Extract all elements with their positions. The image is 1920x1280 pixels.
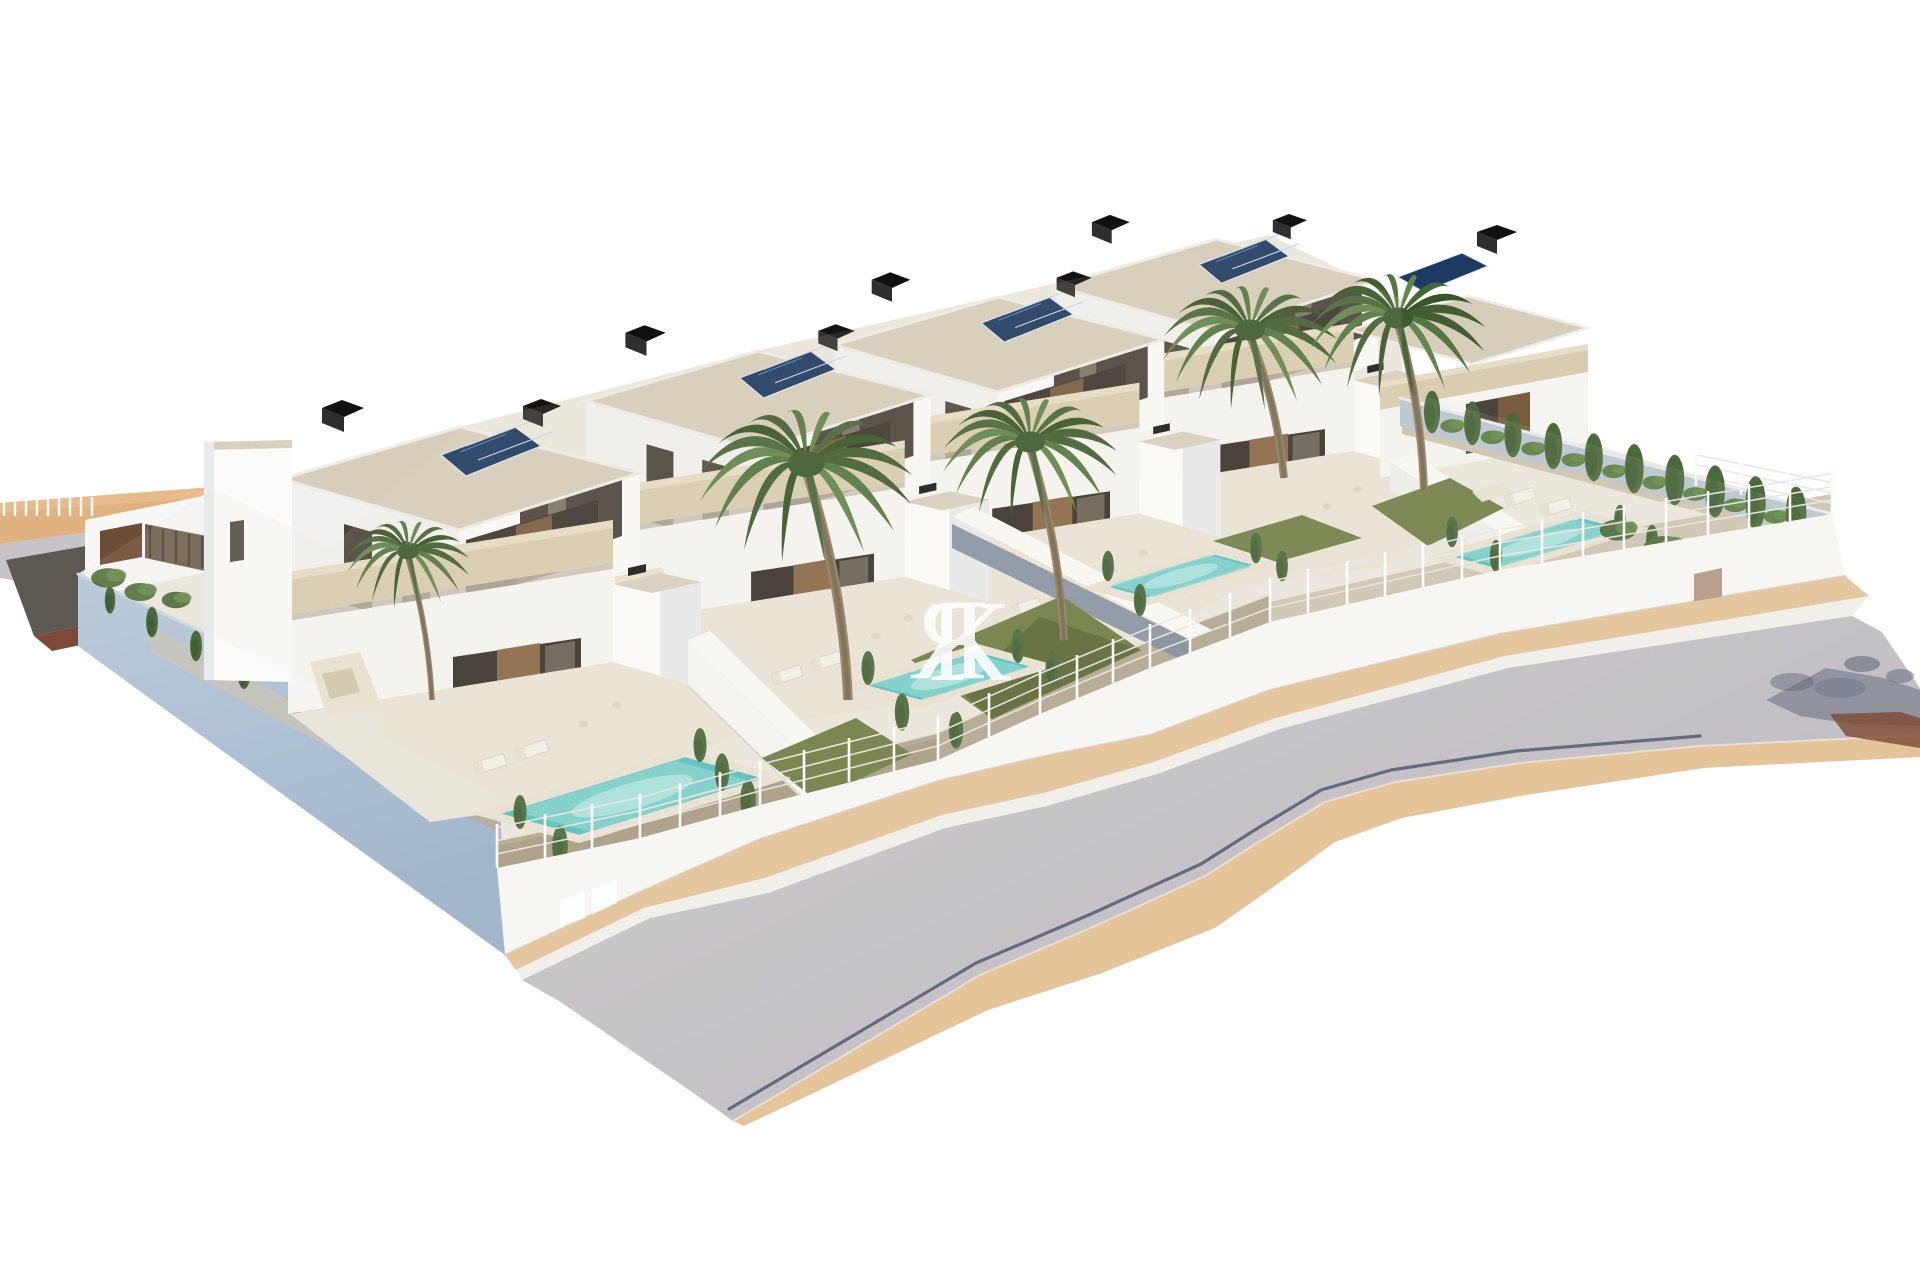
svg-text:K: K [928, 578, 1012, 706]
